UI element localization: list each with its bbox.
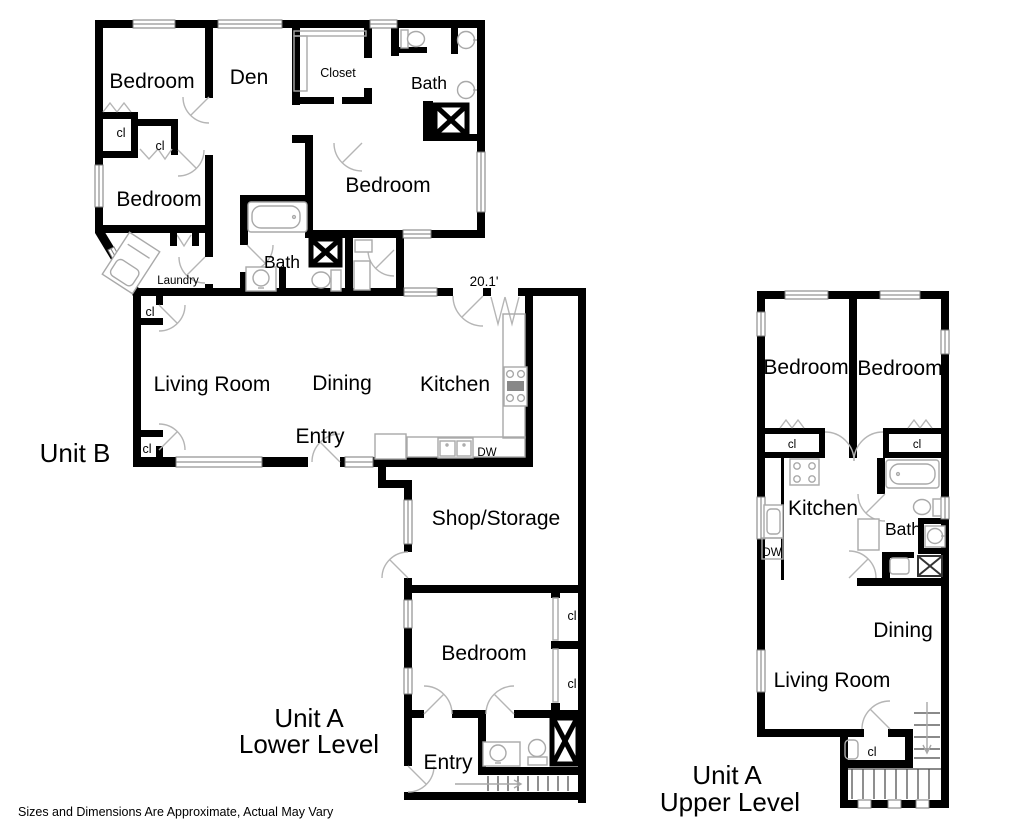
room-label: Bedroom [857, 357, 942, 380]
sink-icon [458, 32, 478, 99]
kitchen-sink-icon [764, 505, 783, 538]
unit-title: Unit B [40, 438, 111, 468]
shower-icon [918, 556, 942, 576]
room-label: Living Room [154, 373, 271, 396]
refrigerator-icon [375, 434, 406, 459]
dimension-label: 20.1' [470, 274, 499, 289]
closet-label: cl [913, 439, 921, 451]
room-label: Dining [312, 372, 372, 395]
closet-label: cl [142, 442, 151, 456]
closet-label: cl [567, 609, 576, 623]
room-label: Bath [411, 73, 447, 93]
closet-door-track [553, 598, 558, 702]
room-label: Closet [320, 66, 356, 80]
stove-icon [504, 367, 527, 406]
toilet-icon [528, 740, 547, 766]
unit-title: Lower Level [239, 729, 379, 759]
room-label: Kitchen [420, 373, 490, 396]
closet-shelf-icon [294, 31, 366, 91]
direction-arrow-icon [923, 702, 931, 753]
disclaimer-text: Sizes and Dimensions Are Approximate, Ac… [18, 805, 334, 819]
toilet-icon [312, 270, 341, 291]
room-label: Entry [295, 425, 345, 448]
room-label: Bedroom [441, 642, 526, 665]
closet-label: cl [145, 305, 154, 319]
floorplan-page: Bedroom Den Closet Bath cl cl Bedroom Be… [0, 0, 1024, 830]
kitchen-sink-icon [438, 438, 473, 458]
room-label: Dining [873, 619, 933, 642]
closet-label: cl [788, 439, 796, 451]
bathtub-icon [886, 460, 939, 488]
unit-title: Upper Level [660, 787, 800, 817]
room-label: Bedroom [116, 188, 201, 211]
closet-label: cl [567, 677, 576, 691]
unit-title: Unit A [692, 760, 762, 790]
room-label: Kitchen [788, 497, 858, 520]
shower-icon [311, 239, 340, 265]
room-label: Bath [264, 252, 300, 272]
toilet-icon [401, 30, 425, 48]
room-label: Living Room [774, 669, 891, 692]
room-label: Bedroom [109, 70, 194, 93]
pantry-icon [858, 519, 879, 550]
toilet-icon [914, 499, 942, 516]
shower-icon [552, 718, 578, 764]
room-label: Bedroom [763, 356, 848, 379]
water-heater-icon [354, 240, 372, 290]
unit-a-lower-fixtures [455, 598, 578, 791]
sink-icon [925, 526, 945, 547]
room-label: Den [230, 66, 269, 89]
bathtub-icon [248, 202, 307, 232]
room-label: Shop/Storage [432, 507, 560, 530]
room-label: Bedroom [345, 174, 430, 197]
room-label: Laundry [157, 275, 199, 287]
closet-label: cl [867, 745, 876, 759]
appliance-label: DW [477, 447, 496, 459]
closet-label: cl [155, 139, 164, 153]
shower-icon [435, 105, 467, 135]
room-label: Bath [885, 519, 921, 539]
closet-label: cl [116, 126, 125, 140]
floorplan-drawing: Bedroom Den Closet Bath cl cl Bedroom Be… [0, 0, 1024, 830]
sink-icon [483, 742, 520, 766]
room-label: Entry [423, 751, 473, 774]
linen-closet-icon [890, 558, 909, 574]
washer-icon [102, 232, 159, 294]
appliance-label: DW [762, 547, 781, 559]
stove-icon [790, 459, 819, 485]
